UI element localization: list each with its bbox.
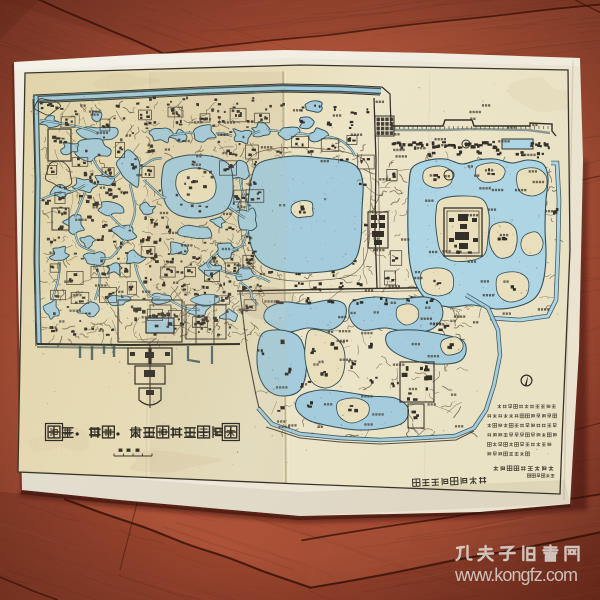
svg-text:www.kongfz.com: www.kongfz.com bbox=[454, 565, 578, 585]
